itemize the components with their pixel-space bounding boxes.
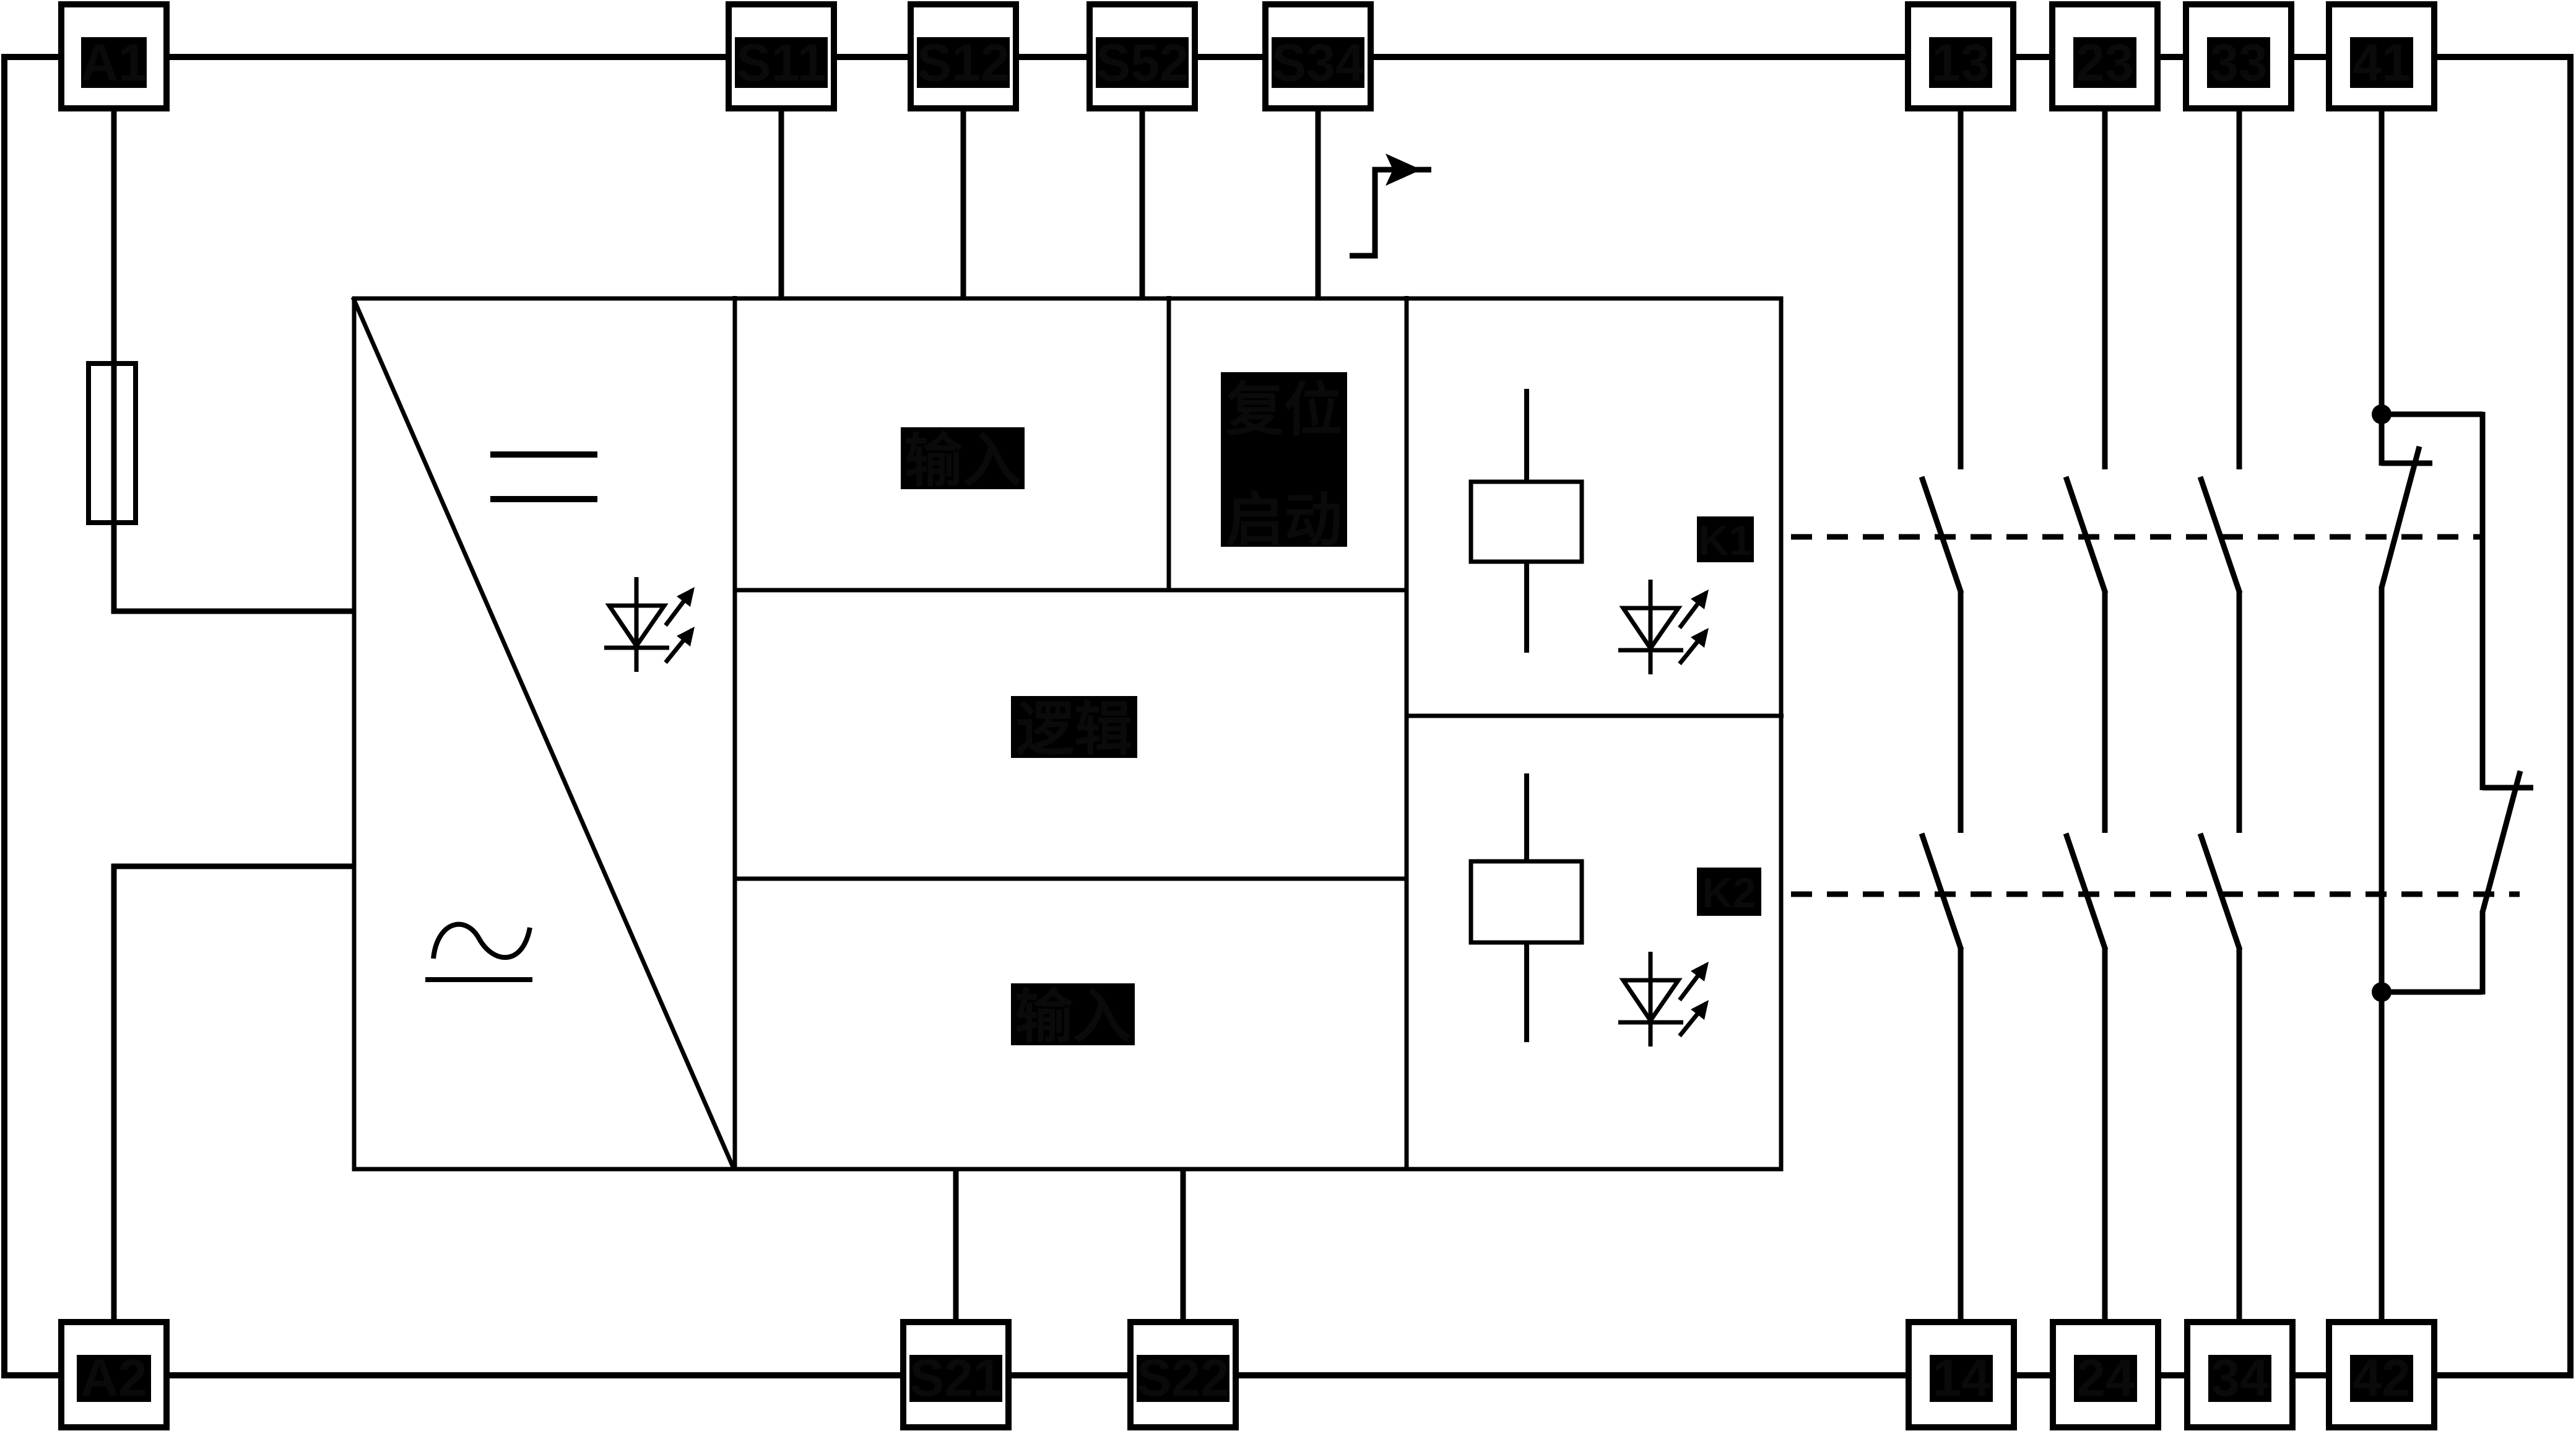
svg-text:S21: S21 xyxy=(909,1349,1002,1407)
svg-text:逻辑: 逻辑 xyxy=(1016,697,1132,762)
svg-text:A1: A1 xyxy=(80,33,147,92)
svg-text:13: 13 xyxy=(1932,33,1989,92)
svg-text:S52: S52 xyxy=(1096,33,1188,92)
svg-text:34: 34 xyxy=(2211,1349,2269,1407)
svg-text:33: 33 xyxy=(2210,33,2267,92)
svg-text:S34: S34 xyxy=(1272,33,1364,92)
svg-text:A2: A2 xyxy=(80,1349,147,1407)
svg-text:输入: 输入 xyxy=(1015,984,1131,1049)
svg-text:42: 42 xyxy=(2353,1349,2410,1407)
svg-text:K1: K1 xyxy=(1699,517,1753,564)
svg-text:23: 23 xyxy=(2076,33,2133,92)
svg-text:启动: 启动 xyxy=(1226,487,1342,552)
svg-text:复位: 复位 xyxy=(1226,377,1342,442)
svg-text:14: 14 xyxy=(1932,1349,1990,1407)
svg-text:41: 41 xyxy=(2353,33,2410,92)
svg-text:24: 24 xyxy=(2076,1349,2135,1407)
svg-text:S12: S12 xyxy=(917,33,1009,92)
svg-text:输入: 输入 xyxy=(904,428,1021,493)
svg-text:K2: K2 xyxy=(1702,869,1756,916)
svg-text:S22: S22 xyxy=(1137,1349,1229,1407)
svg-text:S11: S11 xyxy=(737,33,826,92)
